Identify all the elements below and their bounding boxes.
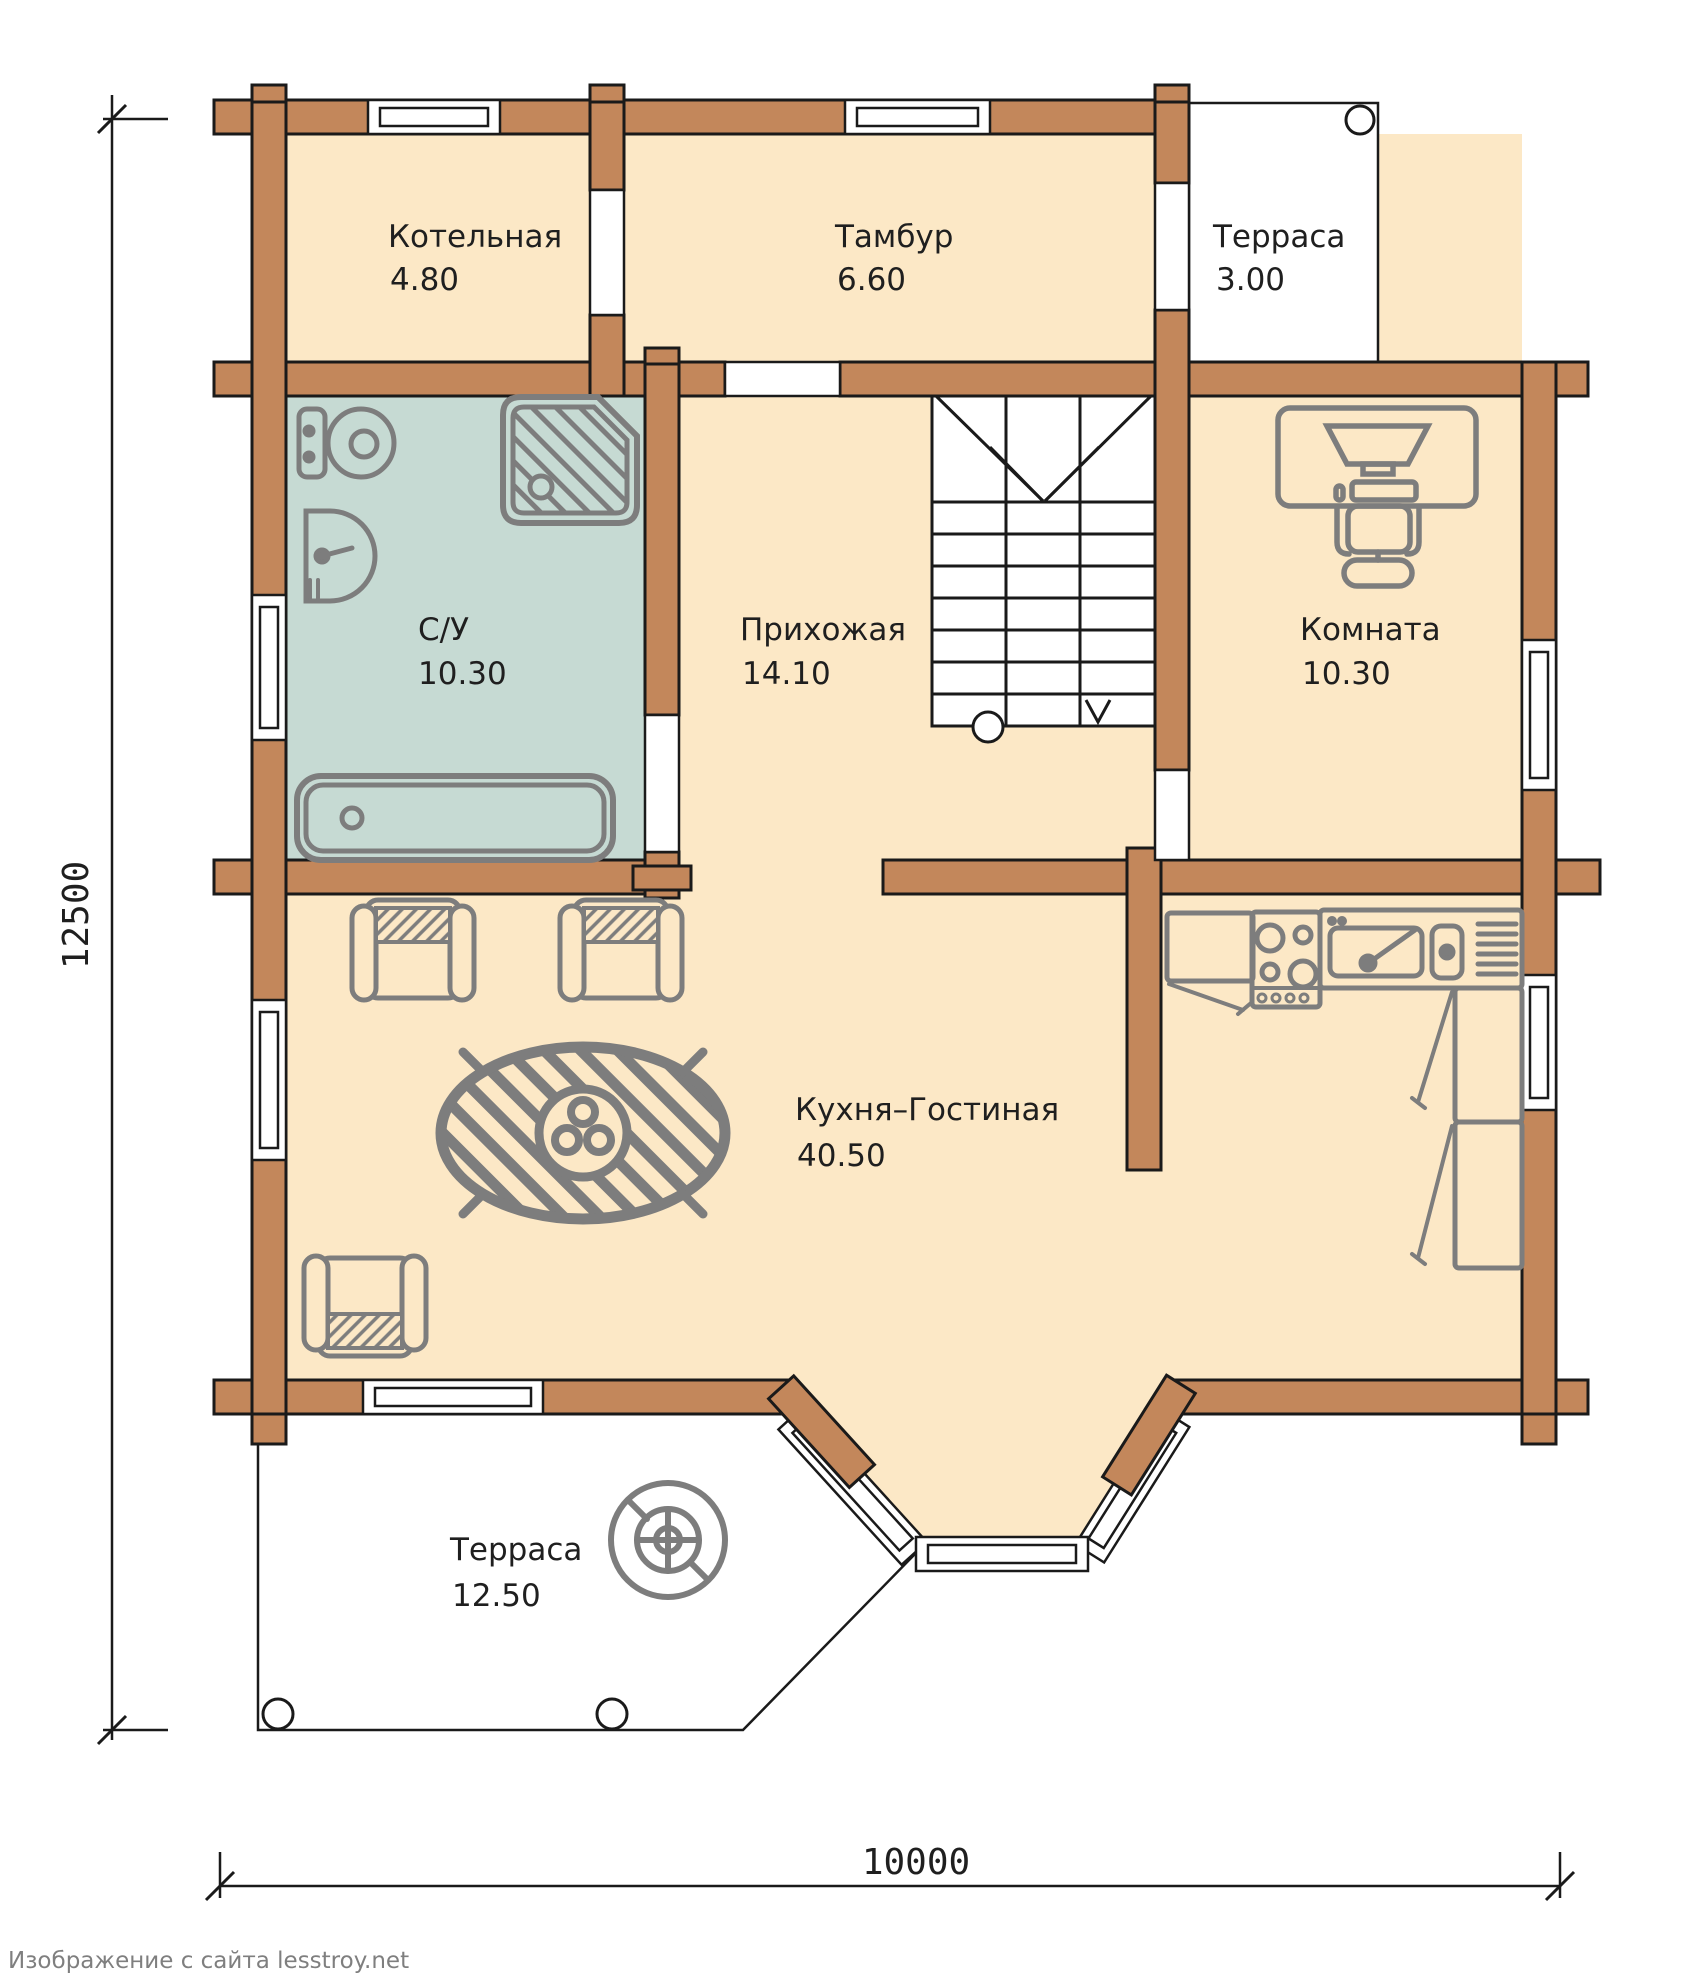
bay-window-center: [916, 1537, 1088, 1571]
wall-bathroom-end-cross: [633, 866, 691, 890]
shower-icon: [503, 397, 637, 523]
log-nub: [590, 85, 624, 102]
window-bathroom: [252, 595, 286, 740]
toilet-icon: [299, 409, 394, 477]
bathtub-icon: [297, 776, 613, 860]
window-vestibule: [845, 100, 990, 134]
watermark: Изображение с сайта lesstroy.net: [8, 1948, 409, 1974]
log-nub: [214, 1380, 252, 1414]
wall-left-exterior: [252, 100, 286, 1414]
door-bathroom: [645, 715, 679, 852]
washbasin-icon: [306, 511, 375, 601]
room-label-boiler: Котельная: [388, 219, 562, 255]
door-vestibule-hallway: [725, 362, 840, 396]
armchair-icon: [352, 900, 474, 1000]
dimension-value-vertical: 12500: [56, 861, 97, 969]
wall-row1-right: [840, 362, 1556, 396]
stairs-icon: [932, 392, 1155, 742]
log-nub: [645, 348, 679, 364]
wall-bottom-right: [1176, 1380, 1556, 1414]
wall-bathroom-right: [645, 362, 679, 715]
column-icon: [597, 1699, 627, 1729]
room-label-hallway: Прихожая: [740, 612, 906, 648]
window-room-right: [1522, 640, 1556, 790]
door-terrace-top: [1155, 183, 1189, 310]
wall-vestibule-terrace-a: [1155, 100, 1189, 183]
column-icon: [263, 1699, 293, 1729]
wall-right-exterior: [1522, 362, 1556, 1414]
room-label-kitchen-living: Кухня–Гостиная: [795, 1092, 1059, 1128]
armchair-icon: [560, 900, 682, 1000]
wall-top: [214, 100, 1189, 134]
room-label-vestibule: Тамбур: [834, 219, 953, 255]
column-icon: [1346, 106, 1374, 134]
floor-plan-canvas: Котельная 4.80 Тамбур 6.60 Терраса 3.00 …: [0, 0, 1701, 1981]
log-nub: [252, 1414, 286, 1444]
window-living-bottom: [363, 1380, 543, 1414]
log-nub: [214, 860, 252, 894]
log-nub: [1556, 860, 1600, 894]
room-area-kitchen-living: 40.50: [797, 1138, 886, 1174]
room-area-room: 10.30: [1302, 656, 1391, 692]
wall-vestibule-terrace-b: [1155, 310, 1189, 770]
room-label-bathroom: С/У: [418, 612, 469, 648]
log-nub: [1522, 1414, 1556, 1444]
room-area-bathroom: 10.30: [418, 656, 507, 692]
wall-boiler-vestibule-a: [590, 100, 624, 190]
room-label-terrace-top: Терраса: [1212, 219, 1345, 255]
wall-kitchen-stub: [1127, 848, 1161, 1170]
log-nub: [214, 362, 252, 396]
floor-plan-drawing: Котельная 4.80 Тамбур 6.60 Терраса 3.00 …: [0, 0, 1701, 1981]
log-nub: [1556, 362, 1588, 396]
wall-row2-left: [252, 860, 660, 894]
window-living-left: [252, 1000, 286, 1160]
log-nub: [1556, 1380, 1588, 1414]
room-label-terrace-bottom: Терраса: [449, 1532, 582, 1568]
log-nub: [1155, 85, 1189, 102]
window-kitchen-right: [1522, 975, 1556, 1110]
wall-boiler-vestibule-b: [590, 315, 624, 396]
room-area-hallway: 14.10: [742, 656, 831, 692]
stairs-newel-post: [973, 712, 1003, 742]
dimension-value-horizontal: 10000: [862, 1842, 970, 1883]
wall-row2-right: [883, 860, 1556, 894]
door-boiler: [590, 190, 624, 315]
room-area-vestibule: 6.60: [837, 262, 906, 298]
window-boiler: [368, 100, 500, 134]
armchair-icon: [304, 1256, 426, 1356]
dining-table-icon: [441, 1047, 725, 1219]
log-nub: [252, 85, 286, 102]
room-area-terrace-bottom: 12.50: [452, 1578, 541, 1614]
room-area-boiler: 4.80: [390, 262, 459, 298]
room-area-terrace-top: 3.00: [1216, 262, 1285, 298]
room-label-room: Комната: [1300, 612, 1441, 648]
door-room: [1155, 770, 1189, 860]
